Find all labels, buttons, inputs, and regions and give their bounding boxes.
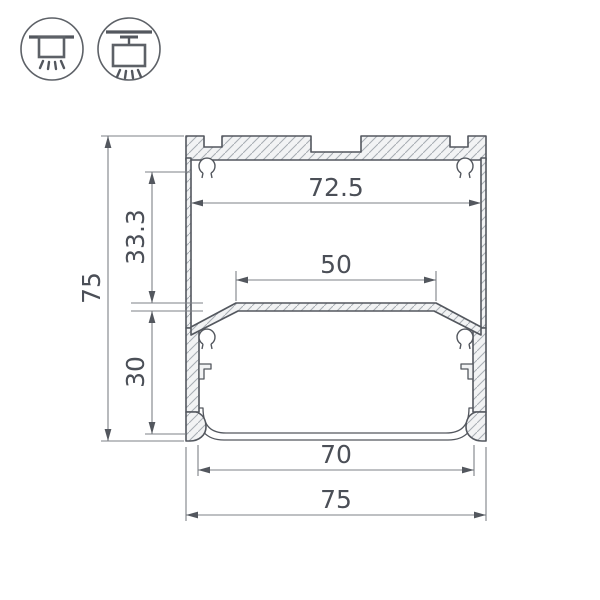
dimension-label-bottom-opening-width: 70 [320,440,352,469]
right-wall-upper [481,158,486,328]
profile-technical-drawing: 72.5 50 33.3 30 75 [0,0,600,600]
right-wall-lower [473,328,486,412]
dimension-label-overall-width: 75 [320,485,352,514]
left-wall-lower [186,328,199,412]
dimension-label-led-platform-width: 50 [320,250,352,279]
dimension-label-overall-height: 75 [77,272,106,304]
dimension-label-upper-chamber-height: 33.3 [121,209,150,265]
dimension-label-lower-chamber-height: 30 [121,356,150,388]
dimension-label-inner-top-width: 72.5 [308,173,364,202]
